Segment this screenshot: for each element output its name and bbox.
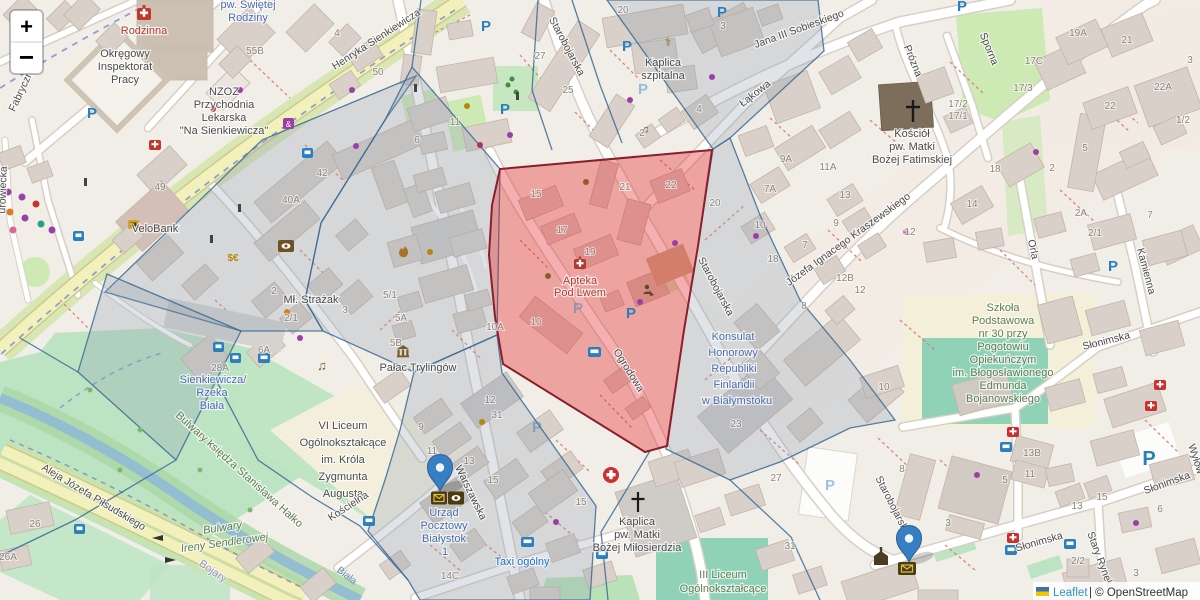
svg-text:40A: 40A [282, 195, 300, 206]
svg-text:9A: 9A [780, 154, 793, 165]
svg-text:Lekarska: Lekarska [202, 112, 248, 124]
svg-text:$€: $€ [227, 253, 239, 264]
svg-text:Konsulat: Konsulat [712, 331, 755, 343]
svg-text:17/1: 17/1 [948, 111, 968, 122]
svg-text:49: 49 [154, 182, 166, 193]
svg-text:14: 14 [966, 199, 978, 210]
svg-text:5: 5 [1082, 143, 1088, 154]
svg-text:Finlandii: Finlandii [714, 379, 755, 391]
svg-text:III Liceum: III Liceum [699, 569, 747, 581]
svg-text:Inspektorat: Inspektorat [98, 61, 152, 73]
svg-text:P: P [532, 419, 542, 436]
svg-text:3: 3 [342, 305, 348, 316]
svg-text:Kaplica: Kaplica [645, 57, 682, 69]
svg-text:17C: 17C [1025, 56, 1043, 67]
svg-text:9: 9 [418, 422, 424, 433]
svg-text:3: 3 [1187, 55, 1193, 66]
svg-text:50: 50 [372, 67, 384, 78]
svg-text:Okręgowy: Okręgowy [100, 48, 150, 60]
svg-text:Pogotowiu: Pogotowiu [977, 341, 1028, 353]
svg-text:5A: 5A [395, 313, 408, 324]
svg-text:Edmunda: Edmunda [979, 380, 1027, 392]
svg-text:pw. Świętej: pw. Świętej [220, 0, 275, 11]
svg-text:Bożej Miłosierdzia: Bożej Miłosierdzia [593, 542, 683, 554]
svg-text:P: P [1142, 448, 1155, 470]
svg-text:Pałac Trylingów: Pałac Trylingów [379, 362, 456, 374]
svg-text:26A: 26A [0, 552, 17, 563]
svg-text:P: P [481, 18, 491, 35]
svg-text:Taxi ogólny: Taxi ogólny [494, 556, 550, 568]
svg-text:Leaflet: Leaflet [1053, 587, 1088, 599]
svg-text:VeloBank: VeloBank [132, 223, 179, 235]
svg-text:−: − [19, 42, 34, 72]
svg-text:Rzeka: Rzeka [196, 387, 228, 399]
svg-text:Ogólnokształcące: Ogólnokształcące [300, 437, 387, 449]
svg-text:P: P [717, 4, 727, 21]
svg-text:8: 8 [899, 464, 905, 475]
svg-text:"Na Sienkiewicza": "Na Sienkiewicza" [180, 125, 269, 137]
svg-text:P: P [622, 38, 632, 55]
svg-text:19A: 19A [1069, 28, 1087, 39]
svg-text:6: 6 [414, 135, 420, 146]
svg-text:4: 4 [696, 104, 702, 115]
svg-text:13: 13 [1071, 501, 1083, 512]
svg-text:20: 20 [709, 198, 721, 209]
svg-text:25: 25 [562, 85, 574, 96]
svg-text:1: 1 [442, 546, 448, 558]
svg-text:Kościół: Kościół [894, 128, 930, 140]
svg-text:21: 21 [619, 182, 631, 193]
svg-text:17/3: 17/3 [1013, 83, 1033, 94]
svg-text:14C: 14C [441, 571, 459, 582]
svg-text:12: 12 [854, 285, 866, 296]
svg-text:Mł. Strażak: Mł. Strażak [283, 294, 339, 306]
svg-text:Podstawowa: Podstawowa [972, 315, 1035, 327]
svg-text:15: 15 [575, 497, 587, 508]
svg-text:13: 13 [839, 190, 851, 201]
svg-text:12: 12 [484, 395, 496, 406]
svg-text:17: 17 [556, 225, 568, 236]
svg-text:P: P [87, 105, 97, 122]
svg-text:22: 22 [665, 180, 677, 191]
svg-text:P: P [573, 300, 583, 317]
svg-text:5: 5 [1002, 475, 1008, 486]
svg-text:21: 21 [1121, 35, 1133, 46]
svg-text:Pracy: Pracy [111, 74, 140, 86]
svg-text:Sienkiewicza/: Sienkiewicza/ [180, 374, 248, 386]
svg-text:Kaplica: Kaplica [619, 516, 656, 528]
svg-text:NZOZ: NZOZ [209, 86, 239, 98]
svg-text:w Białymstoku: w Białymstoku [701, 395, 772, 407]
svg-text:15: 15 [530, 189, 542, 200]
svg-text:28A: 28A [211, 363, 229, 374]
svg-text:26: 26 [29, 519, 41, 530]
svg-text:10: 10 [878, 382, 890, 393]
svg-text:Republiki: Republiki [711, 363, 756, 375]
svg-text:P: P [626, 305, 636, 322]
svg-text:2: 2 [639, 128, 645, 139]
svg-text:3: 3 [720, 21, 726, 32]
svg-text:im. Błogosławionego: im. Błogosławionego [953, 367, 1054, 379]
svg-text:18: 18 [989, 164, 1001, 175]
svg-text:20: 20 [617, 5, 629, 16]
svg-text:urowiecka: urowiecka [0, 166, 10, 214]
svg-text:22A: 22A [1154, 82, 1172, 93]
svg-text:Pod Lwem: Pod Lwem [554, 287, 606, 299]
svg-text:2A: 2A [1075, 208, 1088, 219]
svg-text:6A: 6A [258, 345, 271, 356]
svg-text:12B: 12B [836, 273, 854, 284]
svg-text:| © OpenStreetMap: | © OpenStreetMap [1089, 587, 1188, 599]
svg-text:10: 10 [754, 220, 766, 231]
svg-text:nr 30 przy: nr 30 przy [979, 328, 1028, 340]
svg-text:4: 4 [334, 28, 340, 39]
svg-text:P: P [825, 477, 835, 494]
svg-text:7: 7 [802, 240, 808, 251]
svg-text:13B: 13B [1023, 448, 1041, 459]
svg-text:&: & [286, 120, 292, 129]
svg-text:9: 9 [833, 218, 839, 229]
svg-text:Pocztowy: Pocztowy [420, 520, 468, 532]
svg-text:+: + [20, 14, 33, 39]
svg-text:Bojanowskiego: Bojanowskiego [966, 393, 1040, 405]
svg-text:2: 2 [1049, 163, 1055, 174]
svg-text:im. Króla: im. Króla [321, 454, 365, 466]
svg-text:szpitalna: szpitalna [641, 70, 685, 82]
svg-text:2/1: 2/1 [284, 313, 298, 324]
svg-text:Przychodnia: Przychodnia [194, 99, 255, 111]
svg-text:Biała: Biała [200, 400, 225, 412]
svg-text:2/1: 2/1 [1088, 228, 1102, 239]
svg-text:pw. Matki: pw. Matki [889, 141, 935, 153]
svg-text:3: 3 [1133, 568, 1139, 579]
svg-text:6: 6 [1157, 504, 1163, 515]
svg-text:Rodzinna: Rodzinna [121, 25, 168, 37]
svg-text:5B: 5B [390, 338, 403, 349]
svg-text:23: 23 [730, 419, 742, 430]
svg-text:pw. Matki: pw. Matki [614, 529, 660, 541]
svg-text:27: 27 [534, 51, 546, 62]
svg-text:27: 27 [770, 473, 782, 484]
svg-text:⚕: ⚕ [665, 35, 672, 49]
svg-text:Białystok: Białystok [422, 533, 467, 545]
svg-text:15: 15 [487, 475, 499, 486]
svg-text:18: 18 [767, 254, 779, 265]
svg-text:Szkoła: Szkoła [986, 302, 1020, 314]
svg-text:11A: 11A [819, 162, 836, 173]
svg-text:17/2: 17/2 [948, 99, 968, 110]
svg-text:Rodziny: Rodziny [228, 12, 268, 24]
svg-text:5/1: 5/1 [383, 290, 397, 301]
svg-text:P: P [638, 81, 648, 98]
svg-text:1/2: 1/2 [1176, 115, 1190, 126]
svg-text:13: 13 [463, 456, 475, 467]
svg-text:7A: 7A [764, 184, 777, 195]
svg-text:22: 22 [1104, 101, 1116, 112]
svg-text:19: 19 [584, 247, 596, 258]
svg-text:2/2: 2/2 [1071, 556, 1085, 567]
svg-text:VI Liceum: VI Liceum [319, 420, 368, 432]
svg-text:P: P [957, 0, 967, 15]
svg-text:7: 7 [1147, 210, 1153, 221]
svg-text:Zygmunta: Zygmunta [319, 471, 369, 483]
svg-text:2: 2 [271, 286, 277, 297]
svg-text:10A: 10A [486, 322, 504, 333]
svg-text:3: 3 [945, 518, 951, 529]
svg-text:8: 8 [801, 301, 807, 312]
svg-text:Ogólnokształcące: Ogólnokształcące [680, 583, 767, 595]
svg-text:♫: ♫ [317, 358, 327, 373]
svg-text:Bożej Fatimskiej: Bożej Fatimskiej [872, 154, 952, 166]
svg-text:P: P [500, 101, 510, 118]
svg-text:11: 11 [1025, 469, 1036, 480]
svg-text:Apteka: Apteka [563, 275, 598, 287]
svg-text:11: 11 [450, 117, 461, 128]
svg-text:31: 31 [784, 541, 796, 552]
svg-text:42: 42 [316, 168, 328, 179]
svg-text:31: 31 [491, 410, 503, 421]
svg-text:15: 15 [1096, 492, 1108, 503]
svg-text:Opiekuńczym: Opiekuńczym [970, 354, 1037, 366]
svg-text:P: P [1108, 258, 1118, 275]
svg-text:12: 12 [904, 227, 916, 238]
svg-text:55B: 55B [246, 46, 264, 57]
svg-text:Honorowy: Honorowy [708, 347, 758, 359]
svg-text:10: 10 [530, 317, 542, 328]
svg-text:Urząd: Urząd [429, 507, 458, 519]
